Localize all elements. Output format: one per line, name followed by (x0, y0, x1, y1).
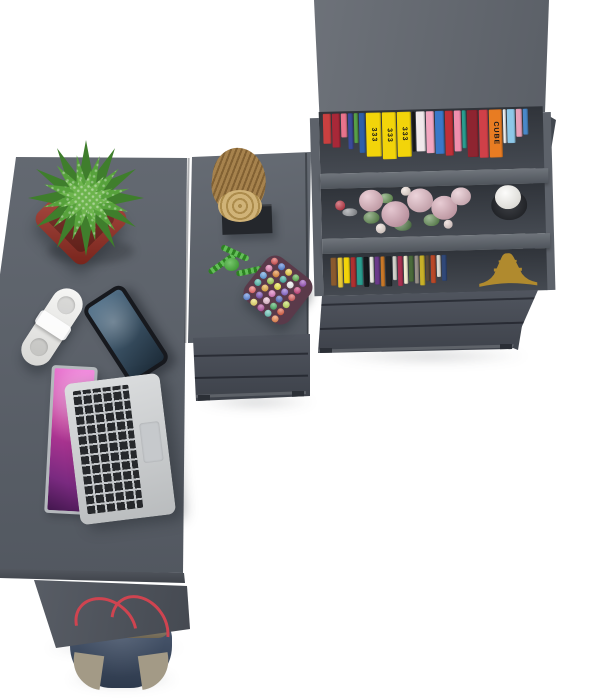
book-item: 333 (397, 112, 412, 157)
potted-cactus (28, 140, 148, 290)
laptop-base (64, 373, 177, 526)
shelf-cavity-middle (321, 183, 546, 239)
rope-knot (224, 258, 239, 271)
pedestal-drawers (190, 333, 316, 407)
bookcase-shelves: 333333333CUBE (309, 98, 554, 296)
bloom-item (363, 212, 379, 224)
laptop (44, 360, 184, 525)
book-item (351, 257, 357, 287)
book-item (403, 256, 408, 284)
book-item (516, 109, 523, 137)
pedestal-base-lip (196, 391, 306, 398)
book-item (323, 114, 332, 144)
book-item (348, 113, 354, 149)
book-item (436, 255, 441, 277)
book-item (414, 255, 419, 283)
book-item (392, 256, 397, 280)
bag-side-patch (70, 652, 104, 690)
book-item (408, 256, 414, 282)
book-item (435, 111, 445, 154)
book-item (479, 110, 489, 158)
book-item (445, 111, 454, 156)
log-sculpture (210, 148, 276, 238)
book-item (364, 257, 370, 287)
book-item (341, 113, 348, 137)
book-item (332, 114, 341, 148)
book-item (354, 113, 359, 143)
log-cut-face (218, 190, 262, 222)
drawer-groove (320, 297, 535, 306)
book-item (523, 109, 529, 135)
drawer-groove (194, 353, 308, 357)
pompom-pouch (239, 251, 318, 330)
eiffel-tower-figurine (474, 252, 539, 288)
book-item (359, 113, 366, 153)
book-item (416, 111, 426, 151)
book-item: 333 (382, 112, 397, 159)
pompom-pouch-group (200, 240, 312, 322)
book-item (370, 257, 375, 283)
bloom-item (376, 223, 386, 233)
book-item (441, 255, 447, 281)
bloom-item (342, 208, 357, 216)
drawer-groove (194, 375, 308, 379)
book-item: 333 (366, 112, 382, 156)
scene: 333333333CUBE (0, 0, 601, 700)
remote-button-circle (54, 293, 79, 318)
bloom-item (444, 220, 453, 229)
book-item (397, 256, 403, 286)
laptop-trackpad (139, 421, 164, 463)
rose-bouquet (335, 185, 486, 237)
book-item (375, 257, 381, 285)
shelf-cavity-top: 333333333CUBE (319, 106, 545, 174)
book-item (507, 109, 516, 143)
book-item (380, 256, 385, 286)
bloom-item (359, 189, 384, 212)
remote-button-circle (26, 335, 51, 360)
book-item: CUBE (489, 109, 503, 157)
book-row-small (331, 254, 482, 294)
book-item (454, 110, 462, 151)
book-item (385, 256, 392, 286)
book-item (331, 258, 338, 286)
drawer-groove (320, 321, 535, 330)
book-item (425, 255, 430, 281)
shelf-cavity-bottom (322, 248, 547, 296)
tote-bag (62, 598, 180, 696)
book-item (430, 255, 436, 283)
book-item (419, 255, 425, 285)
book-row-top: 333333333CUBE (323, 108, 542, 172)
book-item (344, 257, 351, 283)
book-item (338, 257, 344, 287)
book-item (357, 257, 364, 285)
bloom-item (451, 187, 471, 206)
book-item (426, 111, 435, 153)
book-item (467, 110, 479, 157)
laptop-keyboard (73, 385, 144, 515)
